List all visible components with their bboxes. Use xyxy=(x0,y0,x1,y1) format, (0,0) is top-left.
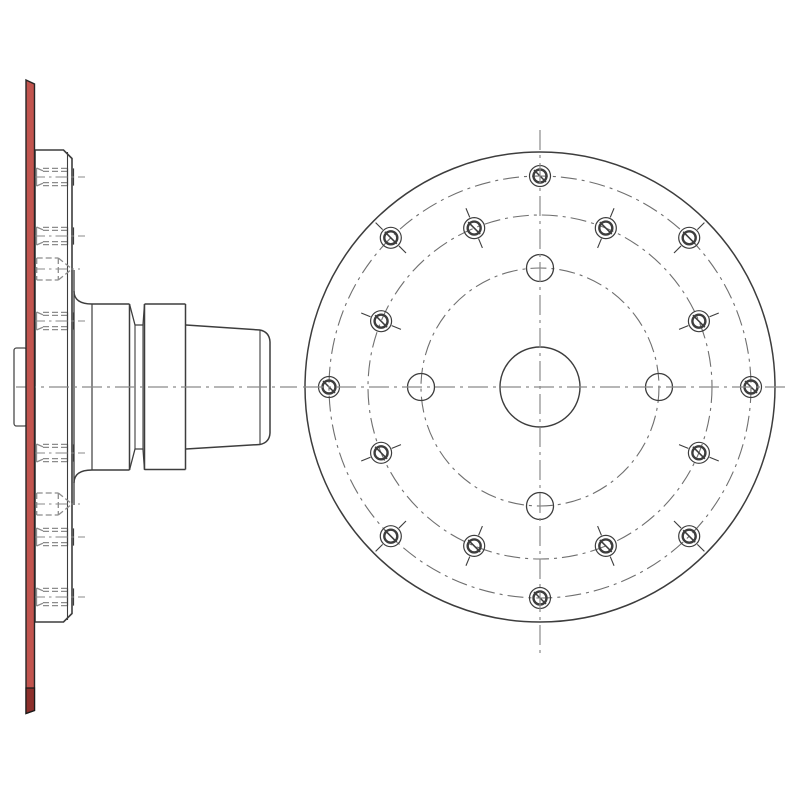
highlighted-plate-body[interactable] xyxy=(26,80,35,714)
highlighted-plate[interactable] xyxy=(26,80,35,714)
highlighted-plate-end xyxy=(26,688,35,714)
cad-viewport[interactable] xyxy=(0,0,800,800)
flange-plate-outline xyxy=(35,150,72,622)
drawing-background xyxy=(0,0,800,800)
cad-drawing-canvas[interactable] xyxy=(0,0,800,800)
